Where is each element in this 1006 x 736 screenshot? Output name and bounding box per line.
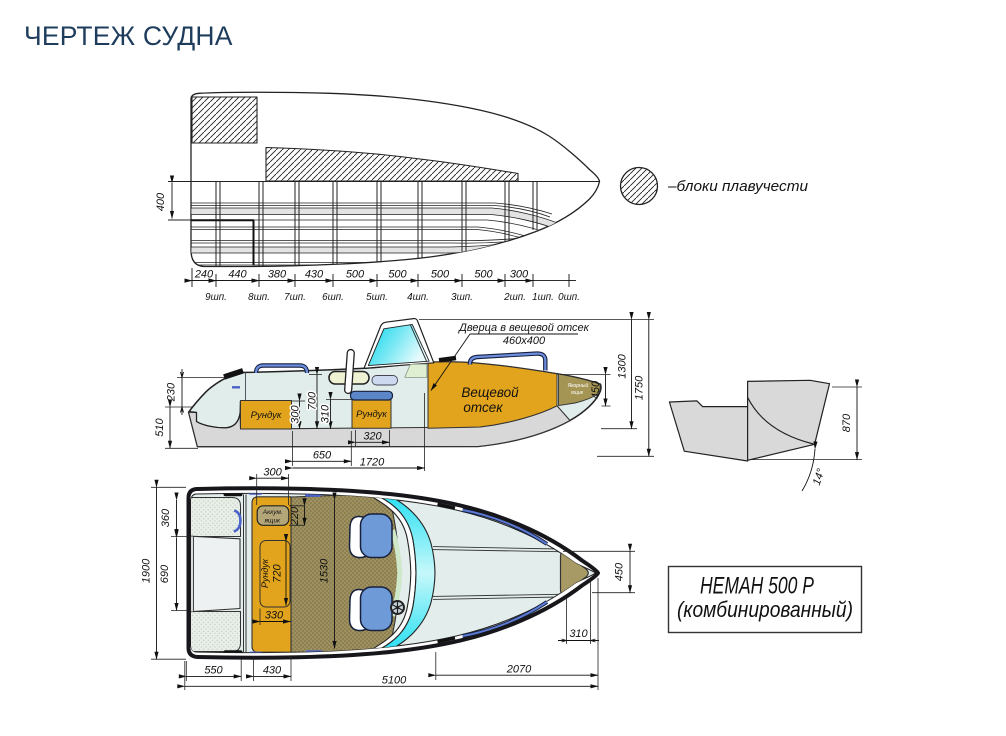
svg-text:(комбинированный): (комбинированный)	[677, 597, 853, 622]
svg-text:0шп.: 0шп.	[558, 292, 580, 303]
svg-text:1900: 1900	[141, 558, 153, 583]
svg-text:460х400: 460х400	[503, 335, 546, 347]
svg-text:ящик: ящик	[570, 390, 584, 396]
svg-text:1530: 1530	[319, 558, 331, 583]
svg-text:5100: 5100	[382, 675, 407, 687]
svg-text:8шп.: 8шп.	[248, 292, 270, 303]
svg-text:700: 700	[307, 391, 319, 410]
svg-text:500: 500	[431, 269, 450, 281]
svg-text:500: 500	[388, 269, 407, 281]
svg-text:230: 230	[166, 382, 178, 402]
svg-text:440: 440	[228, 269, 247, 281]
svg-text:2шп.: 2шп.	[503, 292, 526, 303]
svg-text:Рундук: Рундук	[260, 558, 270, 588]
svg-text:450: 450	[614, 562, 626, 581]
svg-text:300: 300	[510, 269, 529, 281]
svg-text:Дверца в вещевой отсек: Дверца в вещевой отсек	[457, 322, 590, 334]
svg-text:330: 330	[265, 610, 284, 622]
svg-text:Вещевой: Вещевой	[461, 385, 519, 400]
svg-text:400: 400	[155, 192, 167, 211]
svg-text:720: 720	[272, 563, 284, 582]
svg-text:650: 650	[313, 450, 332, 462]
svg-text:240: 240	[194, 269, 214, 281]
svg-text:870: 870	[841, 413, 853, 432]
svg-text:1300: 1300	[617, 353, 629, 378]
svg-text:510: 510	[154, 417, 166, 436]
svg-text:310: 310	[569, 628, 588, 640]
svg-text:–блоки плавучести: –блоки плавучести	[667, 179, 808, 195]
svg-text:500: 500	[346, 269, 365, 281]
svg-text:300: 300	[290, 404, 302, 423]
svg-text:380: 380	[268, 269, 287, 281]
svg-text:Якорный: Якорный	[567, 382, 589, 389]
svg-text:690: 690	[159, 564, 171, 583]
svg-text:НЕМАН 500 Р: НЕМАН 500 Р	[700, 573, 814, 600]
svg-text:6шп.: 6шп.	[322, 292, 344, 303]
svg-text:2070: 2070	[506, 663, 532, 675]
svg-text:500: 500	[474, 269, 493, 281]
svg-text:360: 360	[160, 508, 172, 527]
svg-text:450: 450	[590, 380, 602, 399]
svg-text:430: 430	[305, 269, 324, 281]
svg-text:1шп.: 1шп.	[532, 292, 554, 303]
svg-text:320: 320	[363, 431, 382, 443]
svg-text:9шп.: 9шп.	[205, 292, 227, 303]
svg-text:отсек: отсек	[463, 400, 503, 415]
svg-text:Аккум.: Аккум.	[262, 509, 283, 516]
svg-text:220: 220	[289, 506, 301, 526]
svg-text:550: 550	[204, 665, 223, 677]
svg-text:310: 310	[320, 404, 332, 423]
svg-text:ящик: ящик	[263, 518, 281, 525]
svg-text:7шп.: 7шп.	[284, 292, 306, 303]
svg-text:14°: 14°	[811, 467, 828, 487]
svg-text:300: 300	[263, 467, 282, 479]
svg-text:Рундук: Рундук	[251, 410, 282, 421]
svg-text:1720: 1720	[360, 456, 385, 468]
svg-text:1750: 1750	[634, 375, 646, 400]
svg-text:430: 430	[263, 665, 282, 677]
svg-text:3шп.: 3шп.	[451, 292, 473, 303]
svg-text:4шп.: 4шп.	[407, 292, 429, 303]
svg-text:Рундук: Рундук	[356, 409, 387, 420]
svg-text:5шп.: 5шп.	[366, 292, 388, 303]
